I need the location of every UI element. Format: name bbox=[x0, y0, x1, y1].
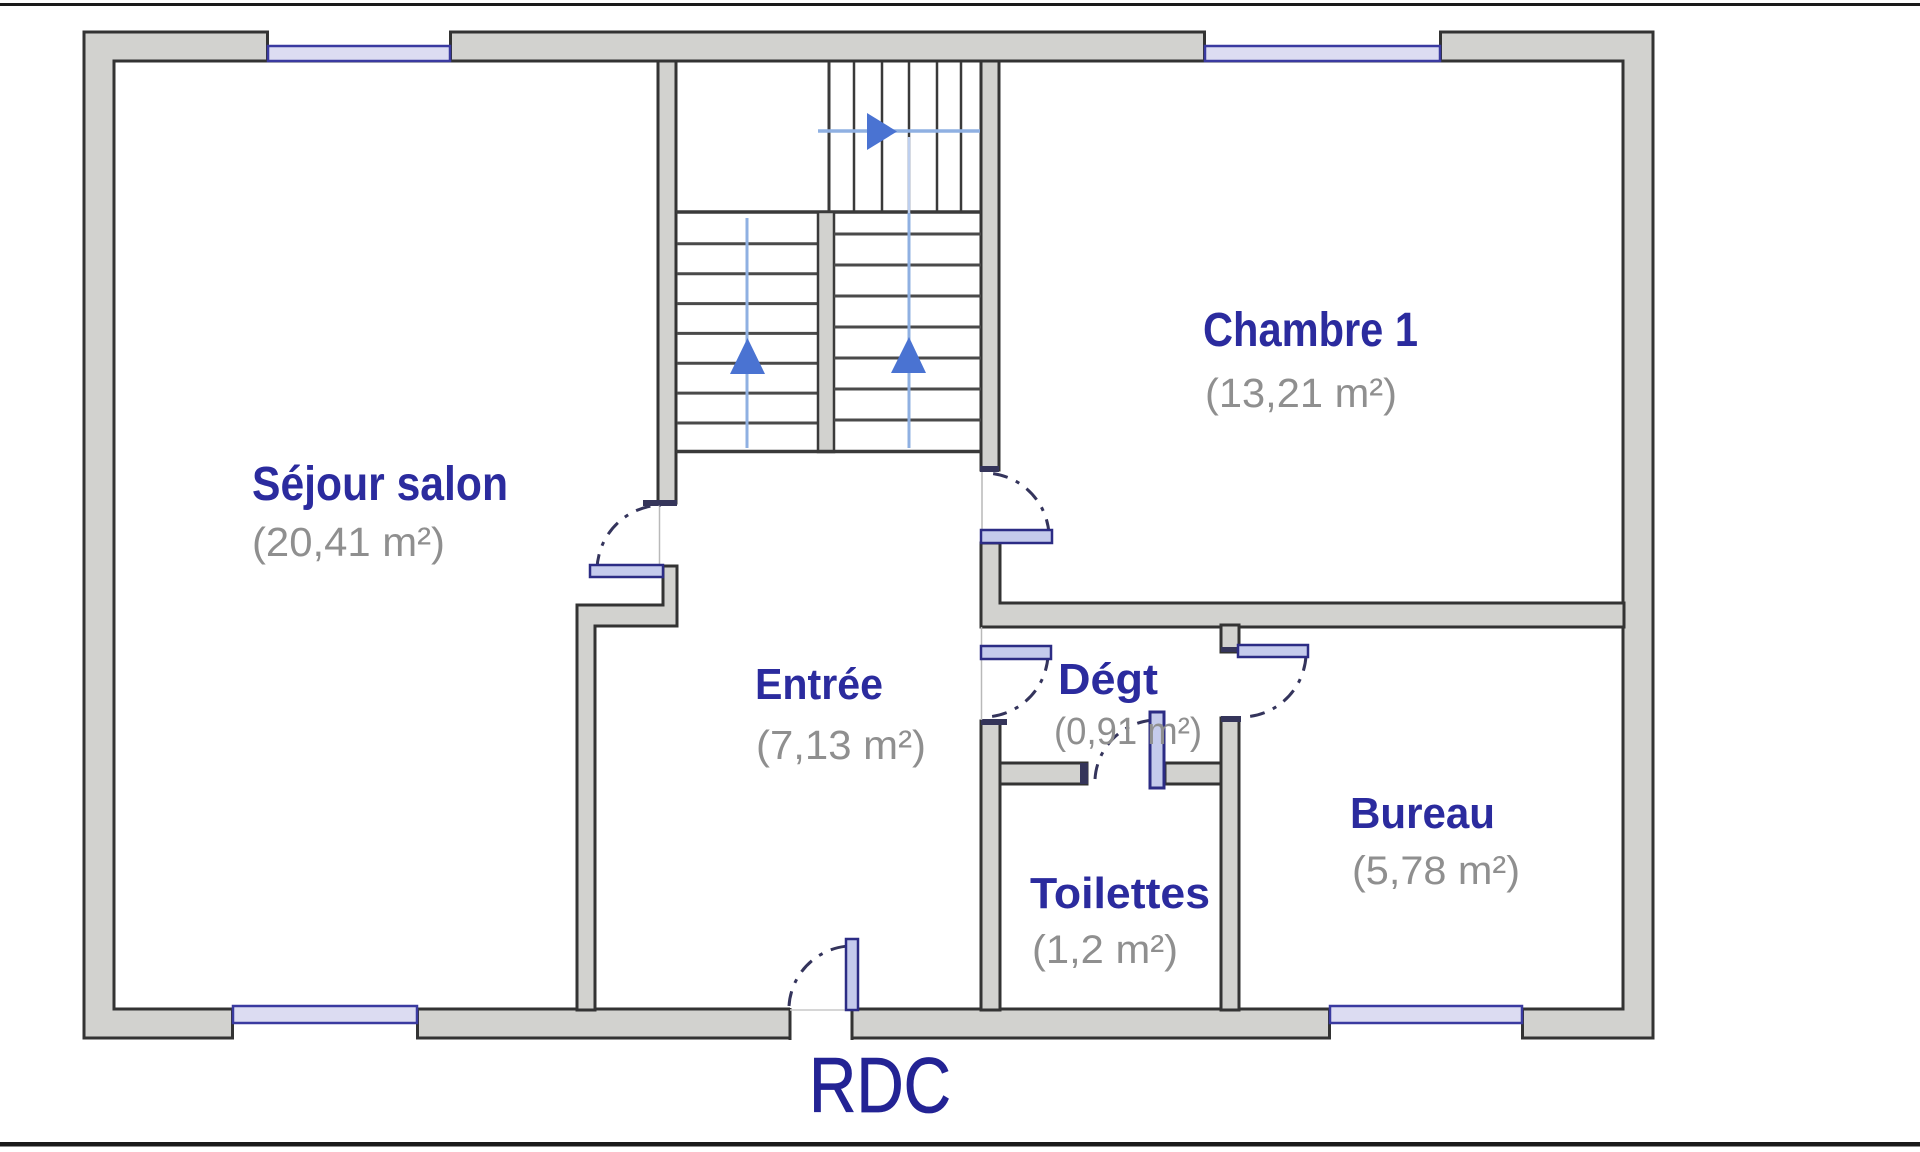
svg-text:(7,13 m²): (7,13 m²) bbox=[756, 722, 926, 768]
svg-text:(5,78 m²): (5,78 m²) bbox=[1352, 849, 1520, 893]
svg-text:Entrée: Entrée bbox=[755, 660, 883, 709]
svg-text:Toilettes: Toilettes bbox=[1030, 869, 1210, 918]
svg-text:(1,2 m²): (1,2 m²) bbox=[1032, 928, 1178, 972]
svg-text:RDC: RDC bbox=[809, 1041, 951, 1129]
svg-text:(0,91 m²): (0,91 m²) bbox=[1054, 711, 1202, 753]
svg-text:(13,21 m²): (13,21 m²) bbox=[1205, 370, 1397, 416]
svg-text:(20,41 m²): (20,41 m²) bbox=[252, 519, 445, 565]
svg-text:Séjour salon: Séjour salon bbox=[252, 458, 508, 511]
svg-text:Bureau: Bureau bbox=[1350, 789, 1495, 838]
svg-text:Chambre 1: Chambre 1 bbox=[1203, 304, 1418, 357]
svg-text:Dégt: Dégt bbox=[1058, 655, 1158, 704]
